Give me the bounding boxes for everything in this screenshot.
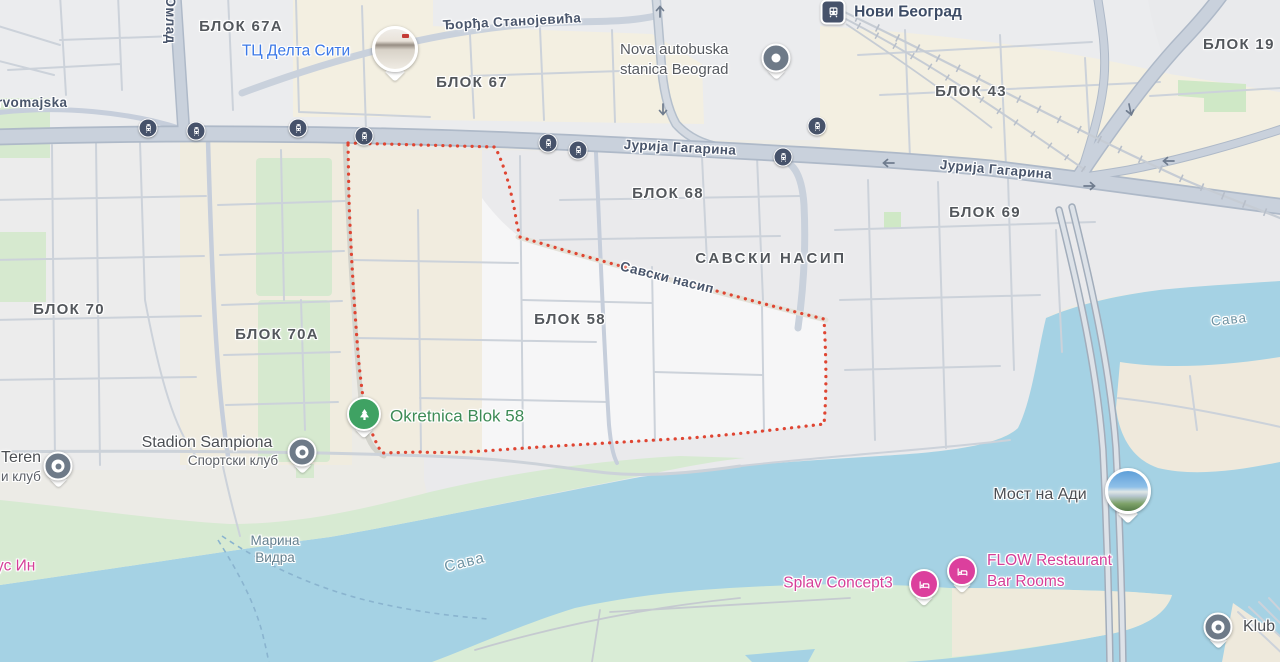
- poi-splav-concept3[interactable]: Splav Concept3: [783, 574, 892, 595]
- sports-icon: [44, 452, 73, 481]
- poi-teren-sub[interactable]: и клуб: [1, 468, 41, 486]
- district-blok-67a: БЛОК 67А: [199, 17, 283, 37]
- street-omladinskih: Омлад: [161, 0, 179, 44]
- poi-marina-vidra-2[interactable]: Видра: [255, 549, 294, 567]
- poi-delta-city[interactable]: ТЦ Делта Сити: [242, 42, 350, 63]
- mall-photo-icon: [372, 26, 418, 72]
- bus-stop-icon[interactable]: [139, 119, 158, 138]
- map-viewport[interactable]: БЛОК 67АТЦ Делта СитиБЛОК 67Ђорђа Станој…: [0, 0, 1280, 662]
- transit-novi-beograd[interactable]: Нови Београд: [854, 3, 962, 24]
- delta-city-photo-pin[interactable]: [372, 26, 418, 72]
- district-blok-68: БЛОК 68: [632, 184, 704, 204]
- poi-us-in[interactable]: ус Ин: [0, 557, 35, 578]
- poi-nova-autobuska[interactable]: Nova autobuska stanica Beograd: [620, 40, 728, 81]
- poi-stadion-sampiona[interactable]: Stadion Sampiona: [142, 432, 273, 454]
- bed-icon: [947, 556, 977, 586]
- district-blok-58: БЛОК 58: [534, 310, 606, 330]
- bus-stop-icon[interactable]: [774, 148, 793, 167]
- bed-icon: [909, 569, 939, 599]
- poi-sportski-klub[interactable]: Спортски клуб: [188, 452, 278, 470]
- poi-klub[interactable]: Klub: [1243, 616, 1275, 638]
- district-blok-67: БЛОК 67: [436, 73, 508, 93]
- poi-dot-icon: [762, 44, 791, 73]
- stadion-sampiona-pin[interactable]: [288, 438, 317, 467]
- poi-okretnica[interactable]: Okretnica Blok 58: [390, 406, 524, 429]
- sports-icon: [1204, 613, 1233, 642]
- right-bank-wedge: [1116, 357, 1280, 472]
- bus-stop-icon[interactable]: [289, 119, 308, 138]
- flow-pin[interactable]: [947, 556, 977, 586]
- bus-stop-icon[interactable]: [187, 122, 206, 141]
- street-prvomajska: rvomajska: [0, 94, 67, 112]
- nova-autobuska-pin[interactable]: [762, 44, 791, 73]
- poi-most-na-adi[interactable]: Мост на Ади: [993, 484, 1086, 506]
- bus-stop-icon[interactable]: [569, 141, 588, 160]
- district-blok-70a: БЛОК 70А: [235, 325, 319, 345]
- sports-icon: [288, 438, 317, 467]
- poi-flow-restaurant[interactable]: FLOW Restaurant Bar Rooms: [987, 551, 1112, 593]
- district-blok-43: БЛОК 43: [935, 82, 1007, 102]
- poi-teren[interactable]: Teren: [1, 447, 41, 469]
- train-icon: [821, 0, 846, 25]
- poi-marina-vidra-1[interactable]: Марина: [251, 532, 300, 550]
- tree-icon: [347, 397, 381, 431]
- bus-stop-icon[interactable]: [808, 117, 827, 136]
- most-na-adi-photo-pin[interactable]: [1105, 468, 1151, 514]
- splav-concept3-pin[interactable]: [909, 569, 939, 599]
- district-blok-70: БЛОК 70: [33, 300, 105, 320]
- bridge-photo-icon: [1105, 468, 1151, 514]
- teren-pin[interactable]: [44, 452, 73, 481]
- bus-stop-icon[interactable]: [355, 127, 374, 146]
- novi-beograd-station-icon[interactable]: [821, 0, 846, 25]
- okretnica-tree-pin[interactable]: [347, 397, 381, 431]
- district-blok-19: БЛОК 19: [1203, 35, 1275, 55]
- district-savski-nasip: САВСКИ НАСИП: [695, 249, 846, 269]
- klub-pin[interactable]: [1204, 613, 1233, 642]
- district-blok-69: БЛОК 69: [949, 203, 1021, 223]
- bus-stop-icon[interactable]: [539, 134, 558, 153]
- water-sava-ne: Сава: [1210, 309, 1248, 331]
